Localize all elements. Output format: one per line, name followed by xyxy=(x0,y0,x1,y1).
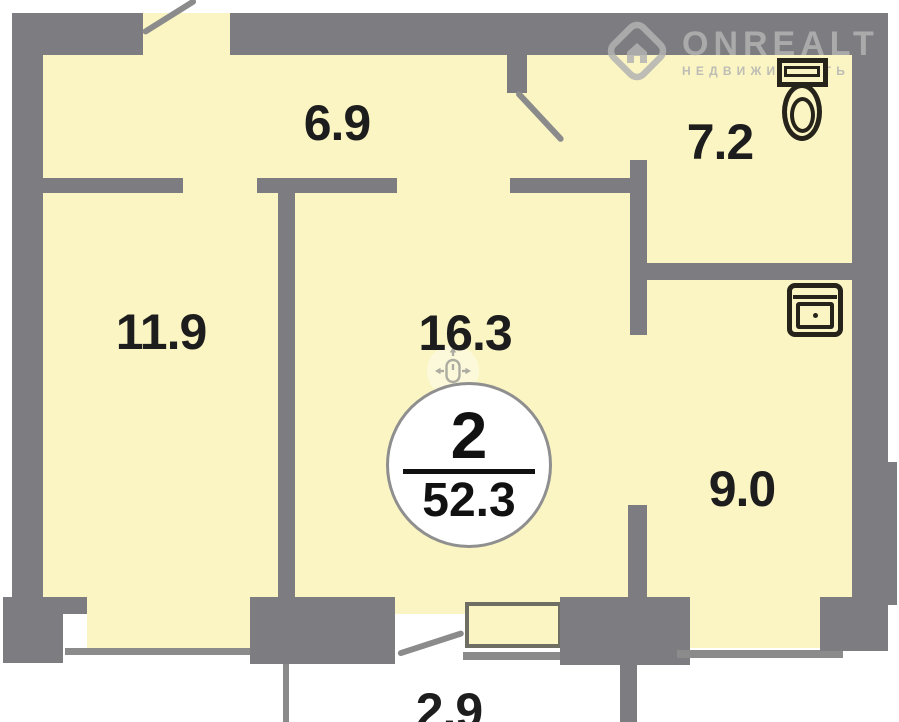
badge-total-area: 52.3 xyxy=(422,476,515,526)
wall-bedroom-living-divider xyxy=(278,190,295,601)
balcony-left-boundary-line xyxy=(283,664,289,722)
badge-room-count: 2 xyxy=(451,405,488,465)
balcony-door-leaf xyxy=(465,602,562,648)
wall-left xyxy=(12,13,43,601)
room-label-bathroom: 7.2 xyxy=(660,115,780,169)
wall-hallway-left-segment xyxy=(43,178,183,193)
window-bedroom-recess xyxy=(87,597,250,648)
room-label-hallway: 6.9 xyxy=(277,96,397,150)
balcony-right-boundary-line xyxy=(620,665,637,722)
room-label-kitchen: 9.0 xyxy=(682,462,802,516)
wall-living-kitchen-divider-bottom xyxy=(628,505,647,604)
wall-bathroom-kitchen-divider xyxy=(647,263,852,280)
sink-icon xyxy=(787,283,843,337)
window-bedroom-glass-line xyxy=(65,648,273,655)
watermark: ONREALT НЕДВИЖИМОСТЬ xyxy=(606,18,879,84)
floor-plan-canvas[interactable]: ONREALT НЕДВИЖИМОСТЬ 6.9 7.2 11.9 16.3 9… xyxy=(0,0,899,722)
window-kitchen-glass-line xyxy=(677,650,843,658)
badge-divider xyxy=(403,469,535,474)
brand-logo-icon xyxy=(606,18,668,84)
wall-entry-door-stub xyxy=(507,55,527,93)
wall-bottom-left-corner-block xyxy=(3,597,63,663)
wall-hallway-right-segment xyxy=(510,178,647,193)
room-label-living-room: 16.3 xyxy=(395,306,535,360)
wall-bottom-mid-block-left xyxy=(250,597,395,664)
window-kitchen-recess xyxy=(690,597,820,648)
room-label-bedroom: 11.9 xyxy=(91,305,231,359)
wall-right-step xyxy=(886,462,897,605)
wall-bottom-mid-block-right xyxy=(560,597,690,665)
wall-right xyxy=(852,13,888,605)
wall-living-kitchen-divider-top xyxy=(630,160,647,335)
balcony-door-swing-line xyxy=(397,630,464,657)
wall-bottom-right-corner-block xyxy=(820,597,888,651)
area-badge: 2 52.3 xyxy=(386,382,552,548)
toilet-icon xyxy=(775,55,831,143)
room-label-balcony: 2.9 xyxy=(389,684,509,722)
